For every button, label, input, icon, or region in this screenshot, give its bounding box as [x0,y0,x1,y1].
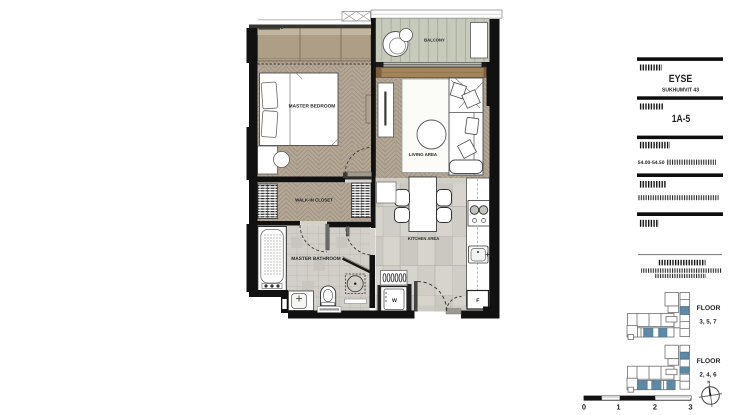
svg-text:FLOOR: FLOOR [697,358,721,365]
svg-text:KITCHEN AREA: KITCHEN AREA [408,236,439,241]
svg-text:BALCONY: BALCONY [424,38,445,43]
svg-text:MASTER BATHROOM: MASTER BATHROOM [291,256,340,262]
svg-text:N: N [707,380,710,385]
svg-text:3: 3 [688,403,692,412]
svg-text:W: W [392,298,397,304]
svg-text:3, 5, 7: 3, 5, 7 [699,319,717,326]
svg-text:2, 4, 6: 2, 4, 6 [699,372,717,379]
svg-text:FLOOR: FLOOR [697,305,721,312]
svg-text:0: 0 [582,403,586,412]
svg-text:1A-5: 1A-5 [672,113,691,125]
svg-text:SUKHUMVIT 43: SUKHUMVIT 43 [662,88,699,94]
svg-text:1: 1 [616,403,620,412]
svg-text:54.00-54.50: 54.00-54.50 [638,160,665,166]
svg-text:F: F [476,298,479,304]
svg-text:2: 2 [653,403,657,412]
svg-text:MASTER BEDROOM: MASTER BEDROOM [289,104,336,110]
svg-text:EYSE: EYSE [669,73,693,85]
svg-text:LIVING AREA: LIVING AREA [409,152,438,157]
svg-text:WALK-IN CLOSET: WALK-IN CLOSET [295,198,333,203]
